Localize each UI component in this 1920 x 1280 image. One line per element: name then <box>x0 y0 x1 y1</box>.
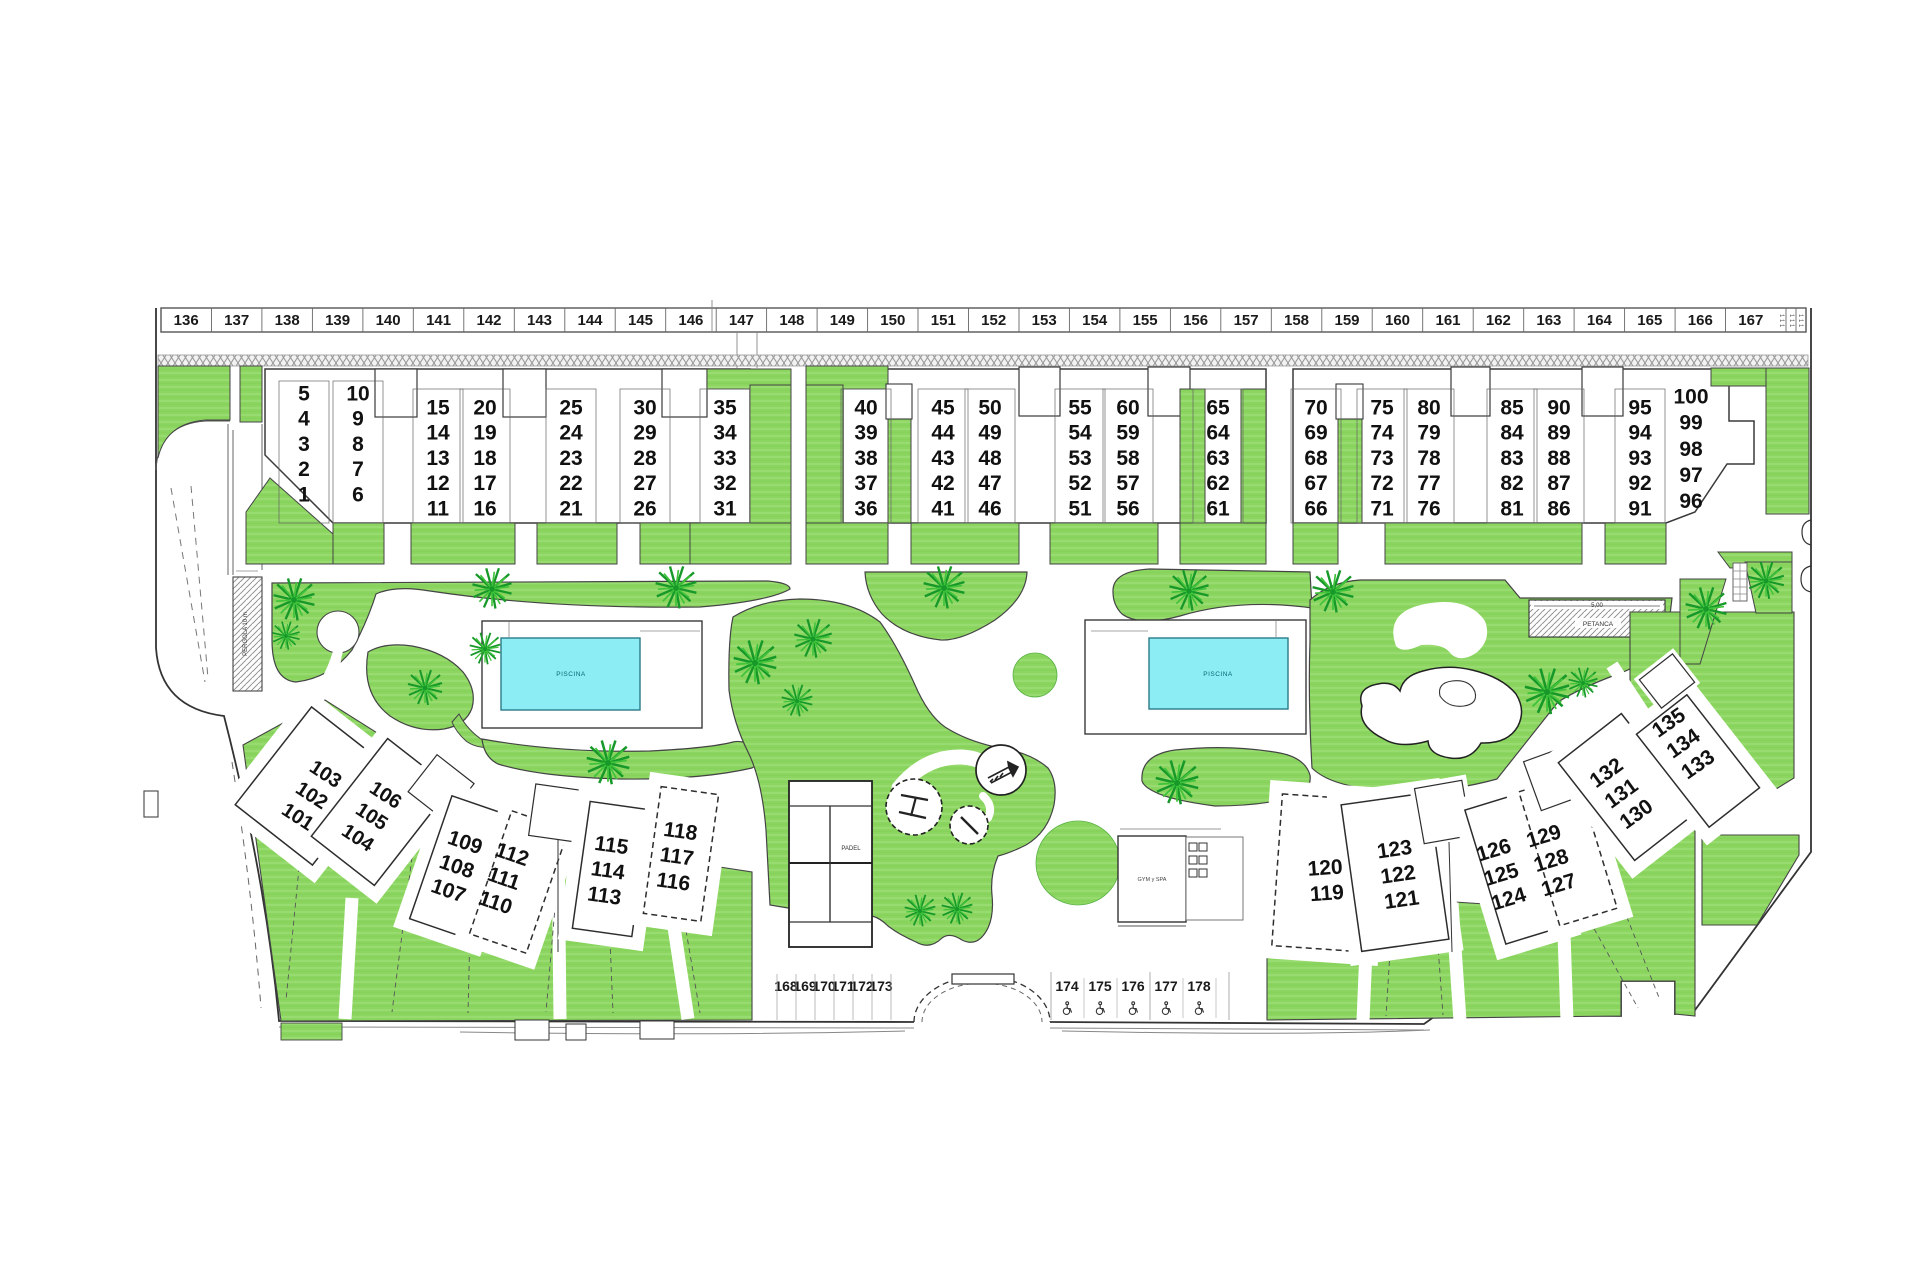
svg-text:62: 62 <box>1206 472 1229 495</box>
svg-text:160: 160 <box>1385 312 1410 329</box>
svg-text:21: 21 <box>559 498 583 521</box>
svg-text:9: 9 <box>352 408 364 431</box>
svg-text:63: 63 <box>1206 447 1229 470</box>
svg-text:85: 85 <box>1500 396 1524 419</box>
svg-text:123: 123 <box>1376 836 1414 864</box>
svg-text:95: 95 <box>1628 396 1652 419</box>
svg-text:119: 119 <box>1309 881 1344 906</box>
svg-text:138: 138 <box>275 312 300 329</box>
svg-text:1 1 1: 1 1 1 <box>1797 314 1803 328</box>
svg-text:43: 43 <box>931 447 954 470</box>
svg-text:23: 23 <box>559 447 582 470</box>
svg-text:25: 25 <box>559 396 583 419</box>
svg-text:140: 140 <box>376 312 401 329</box>
svg-text:164: 164 <box>1587 312 1613 329</box>
svg-text:59: 59 <box>1116 422 1139 445</box>
svg-text:35: 35 <box>713 396 737 419</box>
svg-text:100: 100 <box>1673 385 1708 408</box>
svg-text:97: 97 <box>1679 464 1702 487</box>
svg-text:98: 98 <box>1679 438 1703 461</box>
svg-text:50: 50 <box>978 396 1001 419</box>
svg-text:92: 92 <box>1628 472 1651 495</box>
svg-text:27: 27 <box>633 472 656 495</box>
svg-text:91: 91 <box>1628 498 1652 521</box>
svg-text:PADEL: PADEL <box>841 846 861 852</box>
svg-text:79: 79 <box>1417 422 1440 445</box>
svg-text:42: 42 <box>931 472 954 495</box>
svg-text:64: 64 <box>1206 422 1230 445</box>
svg-text:121: 121 <box>1383 886 1421 914</box>
svg-text:158: 158 <box>1284 312 1309 329</box>
svg-text:22: 22 <box>559 472 582 495</box>
svg-text:145: 145 <box>628 312 653 329</box>
svg-text:74: 74 <box>1370 422 1394 445</box>
svg-text:5: 5 <box>298 382 310 405</box>
svg-text:88: 88 <box>1547 447 1571 470</box>
svg-text:148: 148 <box>779 312 804 329</box>
svg-text:57: 57 <box>1116 472 1139 495</box>
svg-text:81: 81 <box>1500 498 1524 521</box>
svg-text:55: 55 <box>1068 396 1092 419</box>
svg-text:76: 76 <box>1417 498 1440 521</box>
svg-text:151: 151 <box>931 312 956 329</box>
svg-text:10: 10 <box>346 382 369 405</box>
svg-text:86: 86 <box>1547 498 1570 521</box>
svg-text:54: 54 <box>1068 422 1092 445</box>
svg-text:94: 94 <box>1628 422 1652 445</box>
svg-text:26: 26 <box>633 498 656 521</box>
svg-text:PISCINA: PISCINA <box>1203 671 1233 678</box>
svg-text:14: 14 <box>426 422 450 445</box>
svg-text:28: 28 <box>633 447 657 470</box>
svg-text:38: 38 <box>854 447 878 470</box>
svg-text:115: 115 <box>593 832 630 860</box>
svg-text:93: 93 <box>1628 447 1651 470</box>
svg-text:7: 7 <box>352 458 364 481</box>
svg-text:58: 58 <box>1116 447 1140 470</box>
svg-text:147: 147 <box>729 312 754 329</box>
svg-text:150: 150 <box>880 312 905 329</box>
svg-text:19: 19 <box>473 422 496 445</box>
svg-text:146: 146 <box>678 312 703 329</box>
svg-text:162: 162 <box>1486 312 1511 329</box>
svg-text:36: 36 <box>854 498 877 521</box>
svg-text:29: 29 <box>633 422 656 445</box>
svg-text:39: 39 <box>854 422 877 445</box>
svg-text:44: 44 <box>931 422 955 445</box>
svg-text:15: 15 <box>426 396 450 419</box>
svg-text:37: 37 <box>854 472 877 495</box>
svg-text:49: 49 <box>978 422 1001 445</box>
svg-text:152: 152 <box>981 312 1006 329</box>
svg-text:31: 31 <box>713 498 737 521</box>
svg-text:18: 18 <box>473 447 497 470</box>
svg-text:32: 32 <box>713 472 736 495</box>
svg-text:154: 154 <box>1082 312 1108 329</box>
svg-text:82: 82 <box>1500 472 1523 495</box>
svg-text:12: 12 <box>426 472 449 495</box>
svg-text:1: 1 <box>298 484 310 507</box>
svg-text:17: 17 <box>473 472 496 495</box>
svg-text:3: 3 <box>298 433 310 456</box>
svg-text:174: 174 <box>1055 978 1079 994</box>
svg-text:122: 122 <box>1379 861 1417 889</box>
svg-text:87: 87 <box>1547 472 1570 495</box>
svg-text:67: 67 <box>1304 472 1327 495</box>
svg-text:51: 51 <box>1068 498 1092 521</box>
svg-text:70: 70 <box>1304 396 1327 419</box>
svg-text:118: 118 <box>662 818 699 846</box>
svg-text:75: 75 <box>1370 396 1394 419</box>
svg-text:159: 159 <box>1334 312 1359 329</box>
svg-text:116: 116 <box>655 868 692 895</box>
svg-text:96: 96 <box>1679 490 1702 513</box>
svg-text:71: 71 <box>1370 498 1394 521</box>
svg-text:137: 137 <box>224 312 249 329</box>
svg-text:83: 83 <box>1500 447 1523 470</box>
svg-text:69: 69 <box>1304 422 1327 445</box>
svg-text:149: 149 <box>830 312 855 329</box>
svg-text:61: 61 <box>1206 498 1230 521</box>
svg-text:120: 120 <box>1307 855 1344 880</box>
svg-text:155: 155 <box>1133 312 1158 329</box>
svg-text:117: 117 <box>658 843 695 870</box>
svg-text:139: 139 <box>325 312 350 329</box>
svg-text:113: 113 <box>586 882 623 909</box>
svg-text:52: 52 <box>1068 472 1091 495</box>
svg-text:2: 2 <box>298 458 310 481</box>
svg-text:20: 20 <box>473 396 496 419</box>
svg-text:40: 40 <box>854 396 877 419</box>
svg-text:77: 77 <box>1417 472 1440 495</box>
svg-text:13: 13 <box>426 447 449 470</box>
svg-text:142: 142 <box>476 312 501 329</box>
svg-text:GYM y SPA: GYM y SPA <box>1138 877 1167 883</box>
svg-text:PISCINA: PISCINA <box>556 671 586 678</box>
svg-text:45: 45 <box>931 396 955 419</box>
svg-text:34: 34 <box>713 422 737 445</box>
svg-text:PERGOLA 10 m: PERGOLA 10 m <box>243 612 249 656</box>
svg-text:56: 56 <box>1116 498 1139 521</box>
svg-text:175: 175 <box>1088 978 1112 994</box>
svg-text:78: 78 <box>1417 447 1441 470</box>
svg-text:66: 66 <box>1304 498 1327 521</box>
svg-text:73: 73 <box>1370 447 1393 470</box>
svg-text:165: 165 <box>1637 312 1662 329</box>
svg-text:8: 8 <box>352 433 364 456</box>
svg-text:84: 84 <box>1500 422 1524 445</box>
svg-text:156: 156 <box>1183 312 1208 329</box>
svg-text:65: 65 <box>1206 396 1230 419</box>
svg-text:1 1 1: 1 1 1 <box>1778 314 1784 328</box>
svg-text:177: 177 <box>1154 978 1178 994</box>
svg-text:46: 46 <box>978 498 1001 521</box>
svg-text:PETANCA: PETANCA <box>1583 621 1614 628</box>
svg-text:41: 41 <box>931 498 955 521</box>
svg-text:153: 153 <box>1032 312 1057 329</box>
svg-text:176: 176 <box>1121 978 1145 994</box>
svg-text:143: 143 <box>527 312 552 329</box>
svg-text:99: 99 <box>1679 412 1702 435</box>
svg-text:167: 167 <box>1738 312 1763 329</box>
svg-text:1 1 1: 1 1 1 <box>1788 314 1794 328</box>
svg-text:157: 157 <box>1234 312 1259 329</box>
svg-text:48: 48 <box>978 447 1002 470</box>
svg-text:5,00: 5,00 <box>1591 603 1603 609</box>
svg-text:33: 33 <box>713 447 736 470</box>
svg-text:72: 72 <box>1370 472 1393 495</box>
svg-text:166: 166 <box>1688 312 1713 329</box>
svg-text:114: 114 <box>589 857 626 885</box>
svg-text:53: 53 <box>1068 447 1091 470</box>
svg-text:30: 30 <box>633 396 656 419</box>
svg-text:16: 16 <box>473 498 496 521</box>
svg-text:11: 11 <box>427 498 450 521</box>
svg-text:47: 47 <box>978 472 1001 495</box>
svg-text:163: 163 <box>1536 312 1561 329</box>
svg-text:6: 6 <box>352 484 364 507</box>
svg-text:144: 144 <box>577 312 603 329</box>
svg-text:178: 178 <box>1187 978 1211 994</box>
svg-text:60: 60 <box>1116 396 1139 419</box>
svg-text:141: 141 <box>426 312 451 329</box>
svg-text:68: 68 <box>1304 447 1328 470</box>
svg-text:4: 4 <box>298 408 310 431</box>
svg-text:24: 24 <box>559 422 583 445</box>
svg-text:161: 161 <box>1435 312 1460 329</box>
svg-text:90: 90 <box>1547 396 1570 419</box>
svg-text:80: 80 <box>1417 396 1440 419</box>
svg-text:173: 173 <box>869 978 893 994</box>
svg-text:136: 136 <box>174 312 199 329</box>
svg-text:89: 89 <box>1547 422 1570 445</box>
